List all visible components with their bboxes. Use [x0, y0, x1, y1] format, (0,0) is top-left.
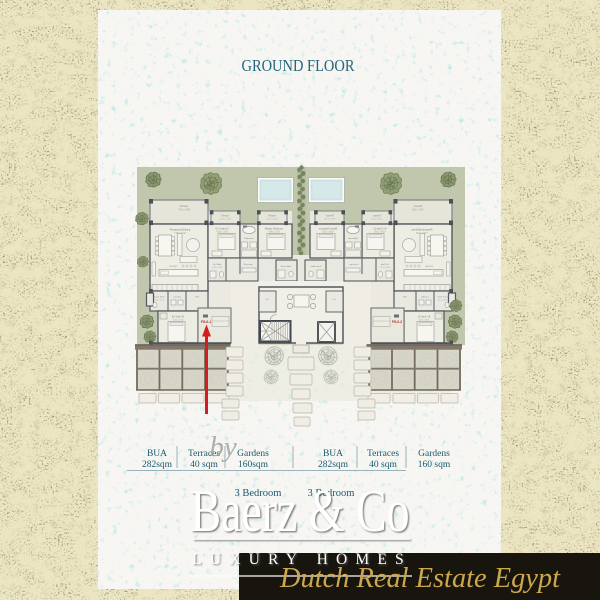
- svg-text:160 sqm: 160 sqm: [418, 460, 451, 470]
- svg-text:Gardens: Gardens: [418, 449, 450, 459]
- svg-text:1.55 x 2.15: 1.55 x 2.15: [212, 267, 223, 269]
- svg-text:1st Toilet: 1st Toilet: [213, 263, 222, 266]
- svg-text:by: by: [209, 431, 237, 463]
- svg-text:Terrace: Terrace: [221, 215, 230, 218]
- svg-text:Guest Bath: Guest Bath: [281, 265, 293, 268]
- svg-text:GROUND FLOOR: GROUND FLOOR: [242, 56, 355, 75]
- svg-text:Master Bedroom: Master Bedroom: [265, 228, 283, 231]
- svg-text:Lift: Lift: [333, 298, 336, 301]
- svg-text:282sqm: 282sqm: [142, 460, 173, 470]
- svg-text:Guest Toilet: Guest Toilet: [154, 296, 165, 299]
- svg-text:Terrace: Terrace: [268, 215, 277, 218]
- svg-text:En Suite 02: En Suite 02: [172, 316, 185, 319]
- svg-text:Hall: Hall: [195, 297, 199, 299]
- svg-text:Baerz & Co: Baerz & Co: [191, 478, 410, 544]
- svg-text:FG-0-2: FG-0-2: [392, 320, 402, 324]
- svg-text:Dutch Real Estate Egypt: Dutch Real Estate Egypt: [279, 563, 561, 594]
- svg-text:Terrace: Terrace: [180, 204, 189, 208]
- svg-text:Laundry: Laundry: [173, 296, 181, 299]
- svg-text:40 sqm: 40 sqm: [369, 460, 397, 470]
- svg-text:4.00 x 3.55: 4.00 x 3.55: [173, 319, 185, 321]
- svg-text:En Suite 03: En Suite 03: [216, 228, 230, 231]
- svg-text:Lift: Lift: [266, 298, 269, 301]
- svg-text:Gardens: Gardens: [237, 449, 269, 459]
- svg-text:1.60 x 2.20: 1.60 x 2.20: [154, 299, 165, 301]
- svg-text:Lounge: Lounge: [169, 265, 178, 268]
- svg-text:FG-0-1: FG-0-1: [201, 320, 211, 324]
- svg-text:2.75 x 1.50: 2.75 x 1.50: [220, 219, 232, 221]
- svg-text:7.60 x 4.80: 7.60 x 4.80: [178, 208, 190, 211]
- svg-text:Bathroom: Bathroom: [244, 237, 254, 240]
- svg-text:282sqm: 282sqm: [318, 460, 349, 470]
- svg-text:BUA: BUA: [323, 449, 343, 459]
- svg-text:Dressing: Dressing: [244, 263, 253, 266]
- svg-text:BUA: BUA: [147, 449, 167, 459]
- svg-text:2.75 x 1.50: 2.75 x 1.50: [267, 219, 279, 221]
- svg-text:Terraces: Terraces: [367, 449, 399, 459]
- svg-text:160sqm: 160sqm: [238, 460, 269, 470]
